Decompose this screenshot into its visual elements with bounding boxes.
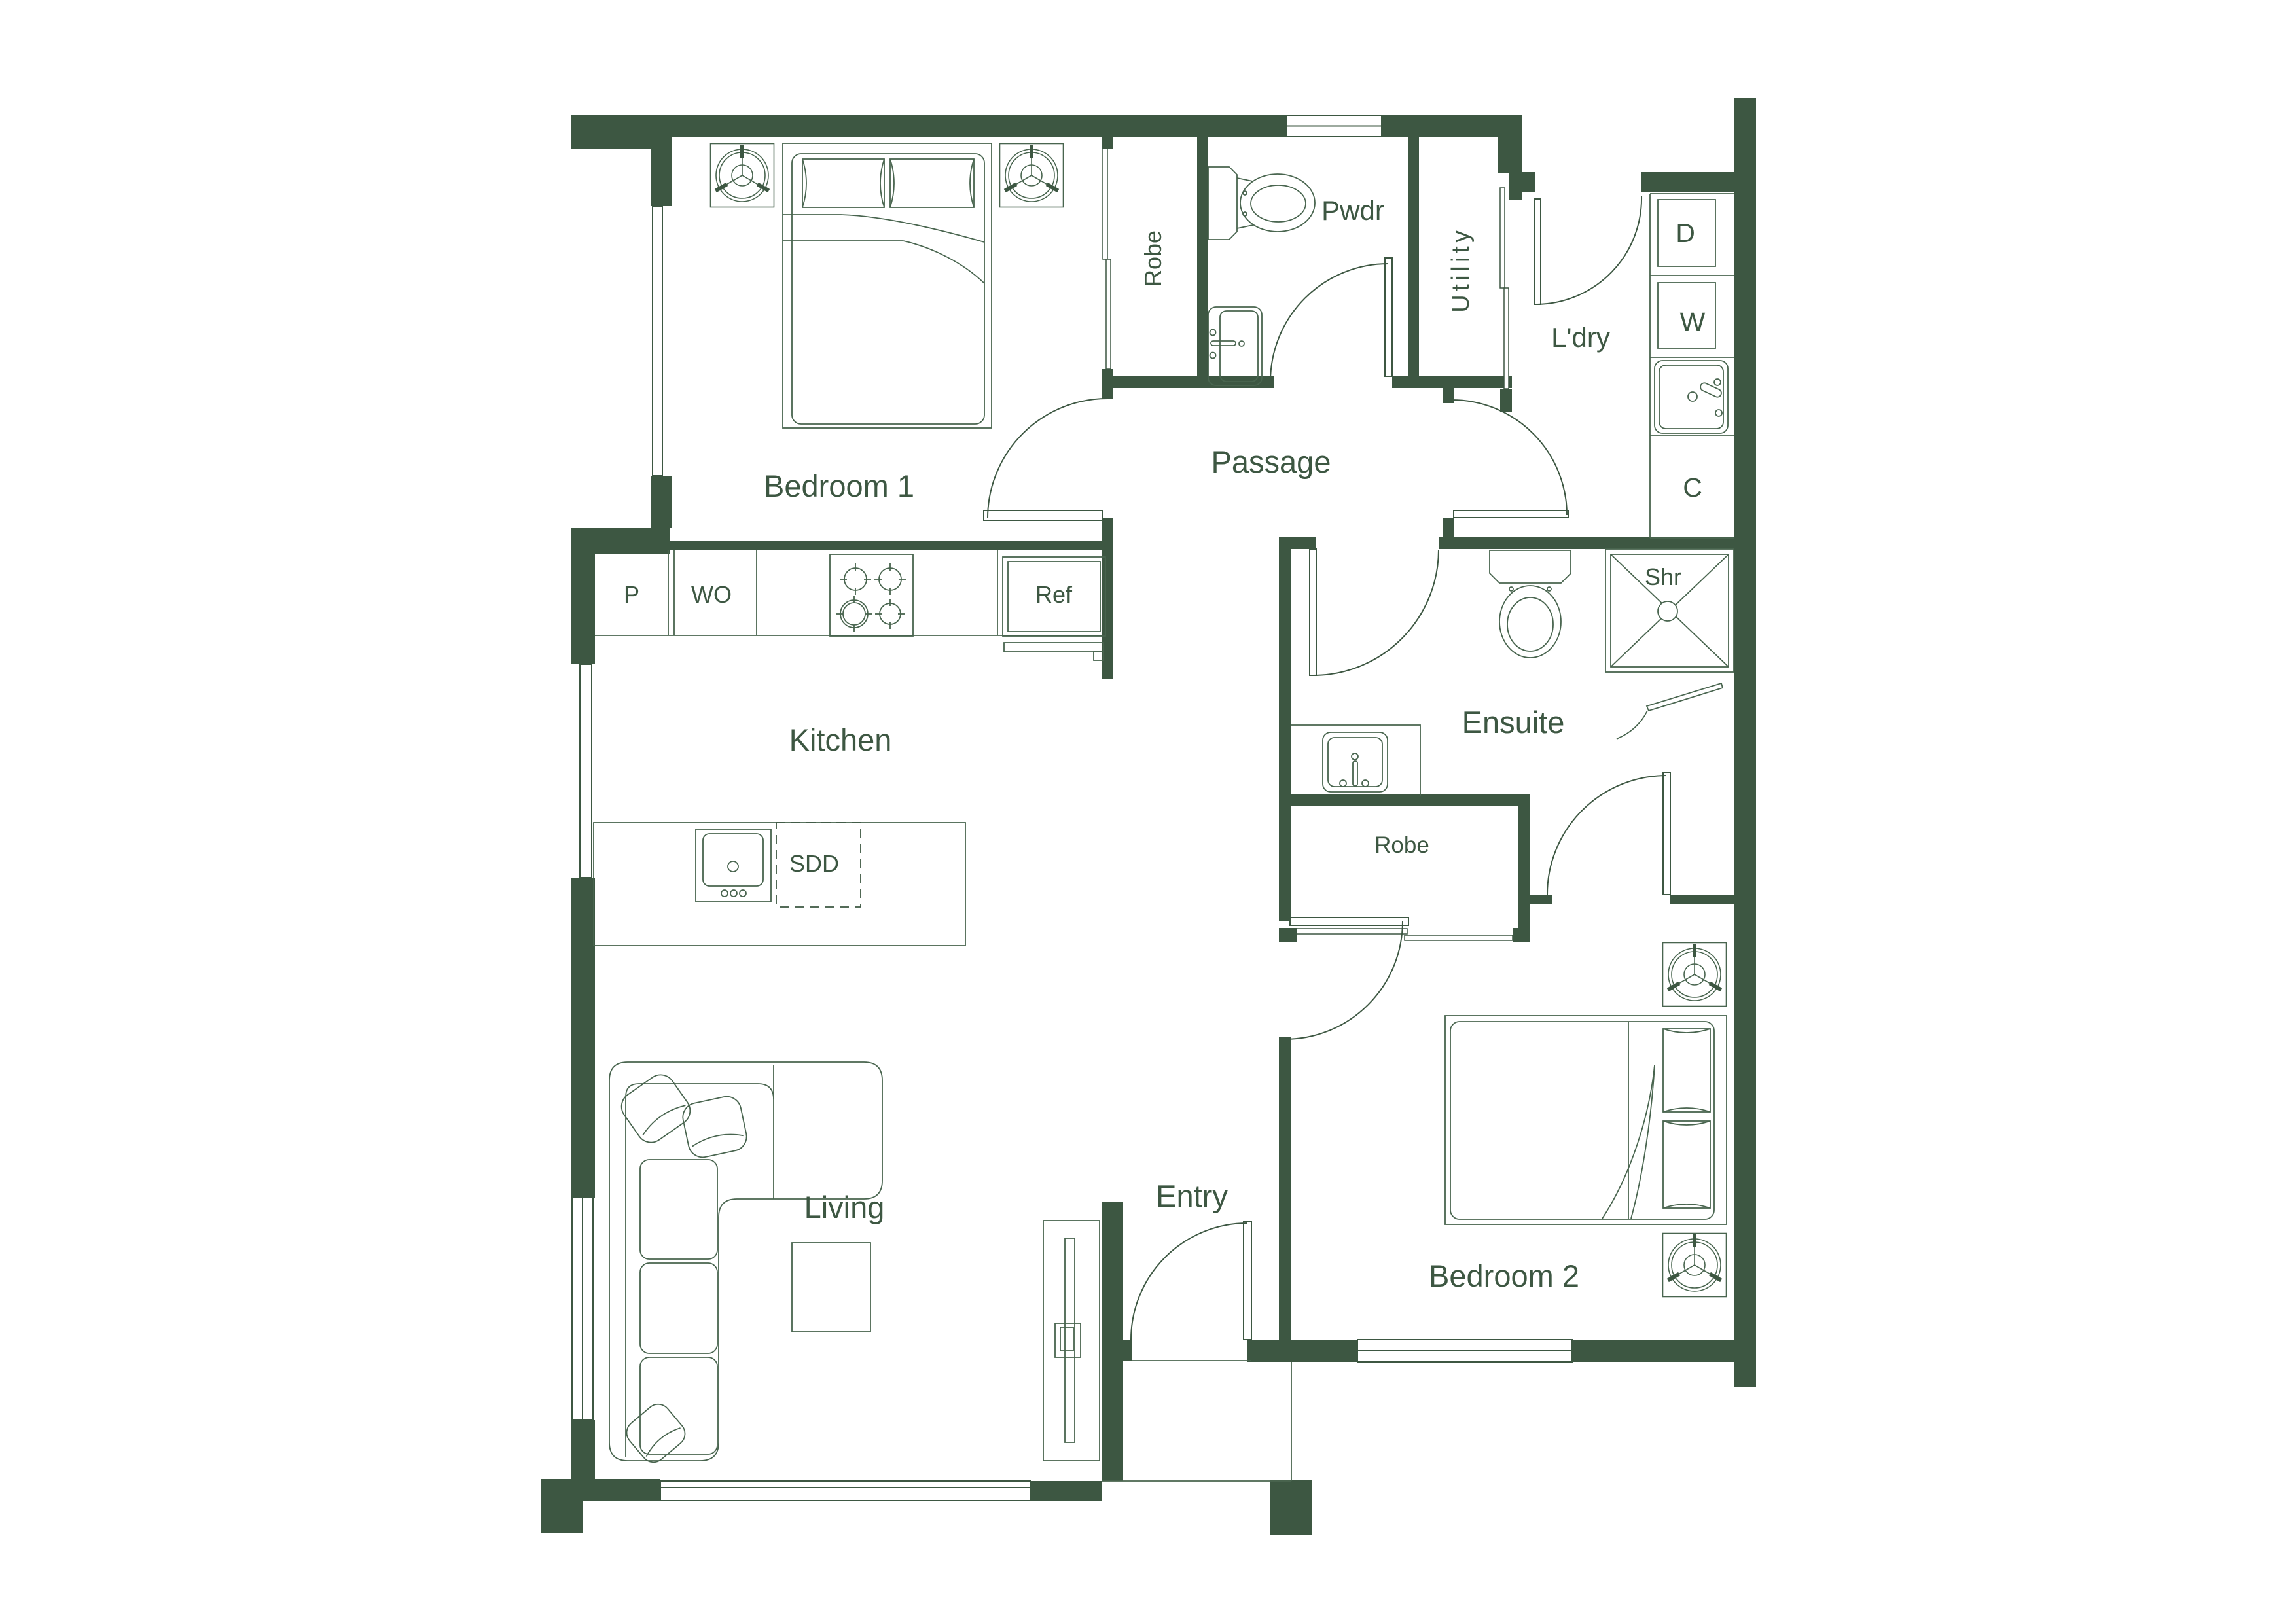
svg-text:Shr: Shr <box>1645 563 1681 590</box>
svg-text:Pwdr: Pwdr <box>1321 195 1384 226</box>
svg-text:Utility: Utility <box>1447 226 1475 312</box>
svg-text:Bedroom 2: Bedroom 2 <box>1429 1258 1579 1293</box>
svg-text:Robe: Robe <box>1139 230 1166 287</box>
svg-text:Passage: Passage <box>1211 444 1331 479</box>
svg-text:WO: WO <box>691 581 732 608</box>
svg-text:Bedroom 1: Bedroom 1 <box>764 469 914 503</box>
svg-text:SDD: SDD <box>789 850 839 877</box>
svg-text:Ref: Ref <box>1035 581 1073 608</box>
svg-text:Kitchen: Kitchen <box>789 722 892 757</box>
svg-text:D: D <box>1676 218 1695 248</box>
svg-text:W: W <box>1680 307 1706 337</box>
svg-text:Living: Living <box>804 1190 885 1224</box>
svg-text:Ensuite: Ensuite <box>1462 705 1565 740</box>
svg-text:L'dry: L'dry <box>1551 322 1610 353</box>
svg-text:Entry: Entry <box>1156 1179 1228 1213</box>
svg-text:P: P <box>624 581 639 608</box>
svg-text:C: C <box>1683 473 1702 503</box>
svg-text:Robe: Robe <box>1374 832 1429 858</box>
